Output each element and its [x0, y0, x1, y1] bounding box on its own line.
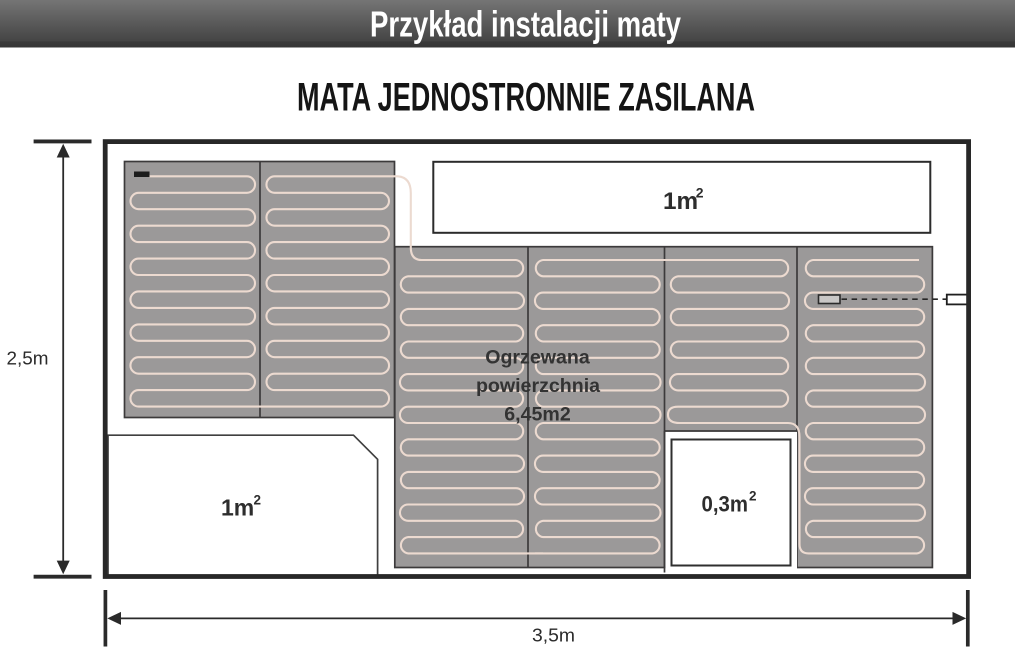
- svg-text:3,5m: 3,5m: [532, 625, 575, 645]
- svg-text:2: 2: [749, 489, 757, 504]
- svg-text:1m: 1m: [663, 188, 698, 215]
- svg-text:2: 2: [696, 185, 704, 201]
- svg-text:Przykład instalacji maty: Przykład instalacji maty: [370, 4, 681, 44]
- svg-text:1m: 1m: [221, 495, 254, 521]
- svg-text:Ogrzewana: Ogrzewana: [485, 347, 591, 369]
- svg-text:2,5m: 2,5m: [7, 349, 49, 369]
- svg-text:6,45m2: 6,45m2: [504, 404, 571, 426]
- svg-text:MATA JEDNOSTRONNIE ZASILANA: MATA JEDNOSTRONNIE ZASILANA: [297, 76, 755, 120]
- svg-text:0,3m: 0,3m: [702, 492, 749, 517]
- svg-text:powierzchnia: powierzchnia: [476, 375, 601, 397]
- svg-text:2: 2: [254, 493, 262, 508]
